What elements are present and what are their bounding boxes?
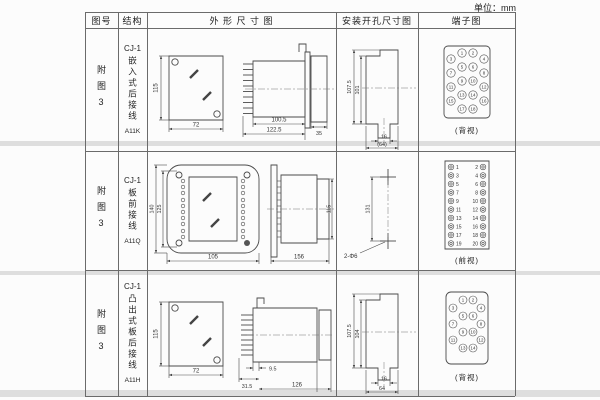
table-border-bottom xyxy=(85,396,515,397)
svg-text:7: 7 xyxy=(456,191,459,197)
svg-text:16: 16 xyxy=(472,225,478,231)
svg-text:12: 12 xyxy=(472,208,478,214)
dim-tab: 16 xyxy=(381,377,387,383)
row2-terminal-diagram: 12 34 56 78 910 1112 1314 1516 1718 1920… xyxy=(418,151,515,270)
row2-code: A11Q xyxy=(124,238,140,245)
header-terminal: 端子图 xyxy=(418,12,515,28)
header-outline: 外 形 尺 寸 图 xyxy=(147,12,336,28)
svg-text:3: 3 xyxy=(450,57,453,62)
svg-text:6: 6 xyxy=(472,65,475,70)
row3-terminal-diagram: 1 2 3 4 5 6 7 8 9 10 11 12 13 14 (背视) xyxy=(418,270,515,396)
svg-text:1: 1 xyxy=(462,298,465,303)
holes-label: 2-Φ6 xyxy=(344,254,358,260)
svg-text:4: 4 xyxy=(480,306,483,311)
header-structure: 结构 xyxy=(118,12,147,28)
row1-cutout-outline: 107.5 101 16 (64) xyxy=(347,50,416,150)
row1-side-view: 100.5 122.5 35 xyxy=(243,44,334,140)
svg-text:8: 8 xyxy=(475,191,478,197)
row2-structure-type: 板前接线 xyxy=(127,188,139,232)
svg-text:5: 5 xyxy=(461,65,464,70)
row3-front-view: 115 72 xyxy=(154,302,224,378)
terminal-circles: 1 2 3 4 5 6 7 8 9 10 11 12 13 14 15 16 1… xyxy=(447,49,488,113)
row3-view-label: (背视) xyxy=(455,372,479,382)
svg-text:18: 18 xyxy=(472,233,478,239)
svg-text:11: 11 xyxy=(451,338,456,343)
row2-fig-no-cell: 附图3 xyxy=(85,151,118,270)
dim-front-height-outer: 140 xyxy=(150,205,156,214)
row3-cutout-outline: 107.5 104 16 64 xyxy=(347,294,416,394)
dim-depth: 126 xyxy=(292,383,303,389)
svg-text:13: 13 xyxy=(460,93,465,98)
svg-text:16: 16 xyxy=(482,99,487,104)
row1-structure-cell: CJ-1 嵌入式后接线 A11K xyxy=(118,28,147,151)
svg-text:12: 12 xyxy=(482,85,487,90)
svg-text:8: 8 xyxy=(480,322,483,327)
svg-text:15: 15 xyxy=(449,99,454,104)
row2-mounting-diagram: 131 2-Φ6 xyxy=(336,151,418,270)
dim-width: 64 xyxy=(379,386,385,392)
svg-text:1: 1 xyxy=(461,51,464,56)
dim-inner-height: 101 xyxy=(355,86,361,95)
dim-depth-outer: 122.5 xyxy=(266,128,282,134)
svg-text:9: 9 xyxy=(461,79,464,84)
svg-text:2: 2 xyxy=(472,51,475,56)
svg-text:5: 5 xyxy=(456,182,459,188)
dim-inner-height: 104 xyxy=(355,330,361,339)
header-fig-no: 图号 xyxy=(85,12,118,28)
dim-front-width: 72 xyxy=(193,123,200,129)
row2-structure-cell: CJ-1 板前接线 A11Q xyxy=(118,151,147,270)
svg-text:18: 18 xyxy=(471,107,476,112)
row3-side-view: 9.5 31.5 126 xyxy=(239,298,334,392)
row1-model: CJ-1 xyxy=(124,44,141,53)
dim-offset: 9.5 xyxy=(269,367,277,373)
dim-front-width: 105 xyxy=(208,255,219,261)
row3-mounting-diagram: 107.5 104 16 64 xyxy=(336,270,418,396)
terminal-circles: 1 2 3 4 5 6 7 8 9 10 11 12 13 14 xyxy=(449,296,485,352)
row2-fig-no: 附图3 xyxy=(95,186,108,235)
svg-text:2: 2 xyxy=(475,165,478,171)
row3-structure-cell: CJ-1 凸出式板后接线 A11H xyxy=(118,270,147,396)
row1-terminal-diagram: 1 2 3 4 5 6 7 8 9 10 11 12 13 14 15 16 1… xyxy=(418,28,515,151)
svg-text:17: 17 xyxy=(460,107,465,112)
dim-outer-height: 107.5 xyxy=(347,80,353,94)
dim-depth-inner: 100.5 xyxy=(271,118,287,124)
svg-text:10: 10 xyxy=(472,199,478,205)
dim-front-height: 115 xyxy=(154,83,160,93)
dim-front-height-inner: 125 xyxy=(157,205,163,214)
svg-text:17: 17 xyxy=(456,233,462,239)
svg-text:11: 11 xyxy=(449,85,454,90)
row2-outline-diagram: 140 125 105 156 xyxy=(147,151,336,270)
row2-front-view: 140 125 105 xyxy=(150,165,260,264)
svg-text:15: 15 xyxy=(456,225,462,231)
svg-text:14: 14 xyxy=(472,216,478,222)
svg-text:13: 13 xyxy=(461,346,466,351)
terminal-strip-right xyxy=(241,179,245,239)
row3-structure-type: 凸出式板后接线 xyxy=(127,294,139,371)
dim-stud-length: 31.5 xyxy=(242,384,253,390)
svg-text:7: 7 xyxy=(452,322,455,327)
svg-text:10: 10 xyxy=(471,79,476,84)
svg-text:14: 14 xyxy=(471,346,476,351)
terminal-strip-left xyxy=(181,179,185,239)
svg-text:19: 19 xyxy=(456,242,462,248)
row1-fig-no: 附图3 xyxy=(95,65,108,114)
row1-view-label: (背视) xyxy=(455,125,479,135)
row1-structure-type: 嵌入式后接线 xyxy=(127,56,139,122)
svg-text:4: 4 xyxy=(475,174,478,180)
row3-fig-no: 附图3 xyxy=(95,309,108,358)
dim-width: (64) xyxy=(377,142,387,148)
row3-model: CJ-1 xyxy=(124,282,141,291)
svg-text:6: 6 xyxy=(472,314,475,319)
dim-depth: 156 xyxy=(294,255,305,261)
row1-code: A11K xyxy=(125,128,140,135)
row1-fig-no-cell: 附图3 xyxy=(85,28,118,151)
row3-code: A11H xyxy=(125,377,141,384)
dim-tab: 16 xyxy=(381,135,387,141)
svg-text:5: 5 xyxy=(462,314,465,319)
svg-text:7: 7 xyxy=(450,71,453,76)
row1-front-view: 115 72 xyxy=(154,56,224,132)
table-border-right xyxy=(515,12,516,396)
svg-text:12: 12 xyxy=(479,338,484,343)
row1-outline-diagram: 115 72 xyxy=(147,28,336,151)
row3-outline-diagram: 115 72 xyxy=(147,270,336,396)
dim-front-height: 115 xyxy=(154,329,160,339)
svg-text:20: 20 xyxy=(472,242,478,248)
svg-text:9: 9 xyxy=(456,199,459,205)
dim-hole-spacing: 131 xyxy=(366,205,372,214)
svg-text:3: 3 xyxy=(456,174,459,180)
dim-bezel-depth: 35 xyxy=(316,131,322,137)
svg-text:6: 6 xyxy=(475,182,478,188)
dim-outer-height: 107.5 xyxy=(347,324,353,338)
svg-text:14: 14 xyxy=(471,93,476,98)
svg-text:3: 3 xyxy=(452,306,455,311)
svg-text:10: 10 xyxy=(471,330,476,335)
header-mounting: 安装开孔尺寸图 xyxy=(336,12,418,28)
terminal-circles: 12 34 56 78 910 1112 1314 1516 1718 1920 xyxy=(448,164,486,247)
row3-fig-no-cell: 附图3 xyxy=(85,270,118,396)
svg-text:11: 11 xyxy=(456,208,461,214)
document-page: 单位：mm 图号 结构 外 形 尺 寸 图 安装开孔尺寸图 端子图 附图3 CJ… xyxy=(0,0,600,400)
svg-text:2: 2 xyxy=(472,298,475,303)
row2-side-view: 156 115 xyxy=(267,165,334,264)
svg-text:9: 9 xyxy=(462,330,465,335)
row1-mounting-diagram: 107.5 101 16 (64) xyxy=(336,28,418,151)
svg-text:1: 1 xyxy=(456,165,459,171)
svg-text:13: 13 xyxy=(456,216,462,222)
row2-model: CJ-1 xyxy=(124,176,141,185)
dim-front-width: 72 xyxy=(193,369,200,375)
svg-text:8: 8 xyxy=(483,71,486,76)
dim-side-height: 115 xyxy=(326,205,332,214)
svg-text:4: 4 xyxy=(483,57,486,62)
row2-view-label: (前视) xyxy=(455,255,479,265)
row2-hole-marks: 131 2-Φ6 xyxy=(344,169,396,260)
